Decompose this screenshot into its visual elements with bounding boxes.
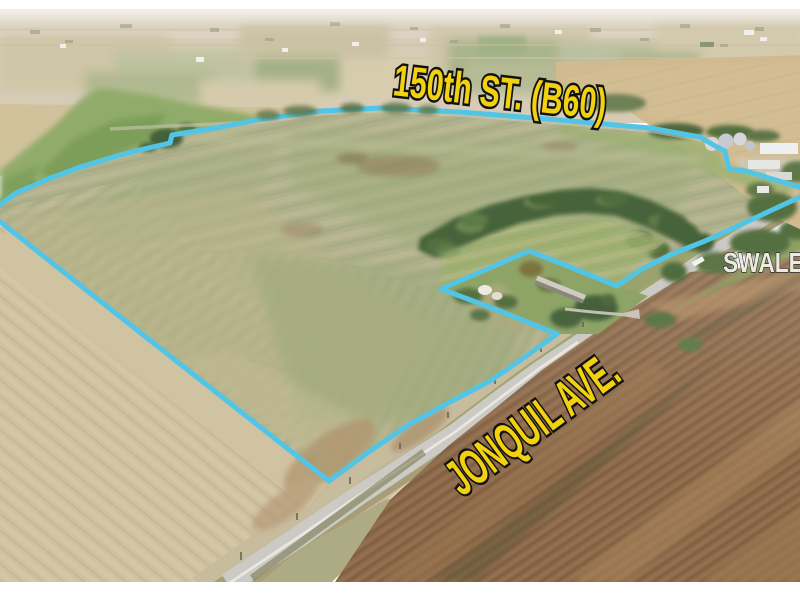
svg-text:SWALES: SWALES xyxy=(723,247,800,278)
